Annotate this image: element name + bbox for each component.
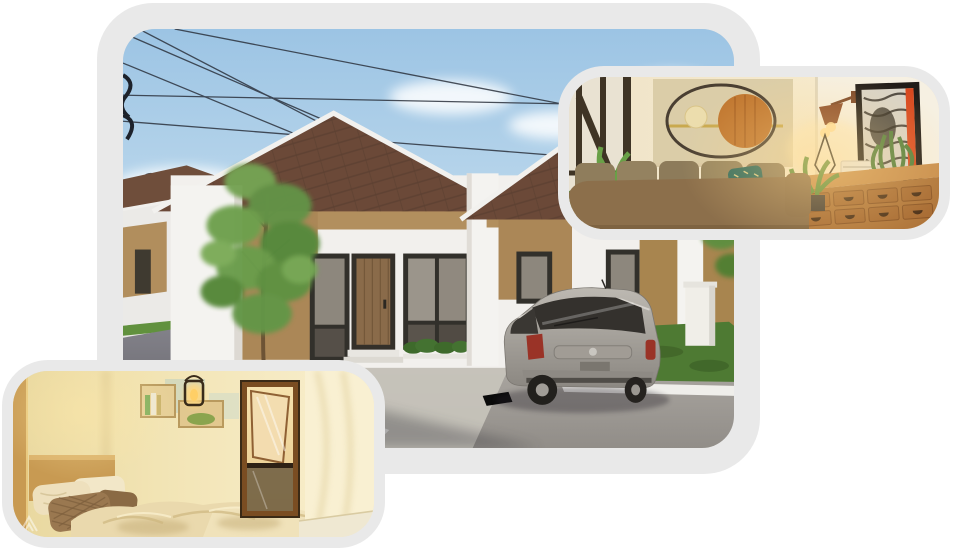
living-room-photo: [569, 77, 939, 229]
mirror-door: [241, 381, 299, 517]
bedroom-illustration: [13, 371, 374, 537]
warm-glow: [681, 77, 939, 229]
bedroom-photo: [13, 371, 374, 537]
photo-collage-canvas: [0, 0, 953, 551]
right-wall: [299, 371, 374, 537]
lantern: [184, 376, 204, 407]
living-room-illustration: [569, 77, 939, 229]
photo-card-bedroom[interactable]: [2, 360, 385, 548]
front-door: [344, 254, 404, 363]
photo-card-living-room[interactable]: [558, 66, 950, 240]
window-double: [403, 254, 471, 359]
